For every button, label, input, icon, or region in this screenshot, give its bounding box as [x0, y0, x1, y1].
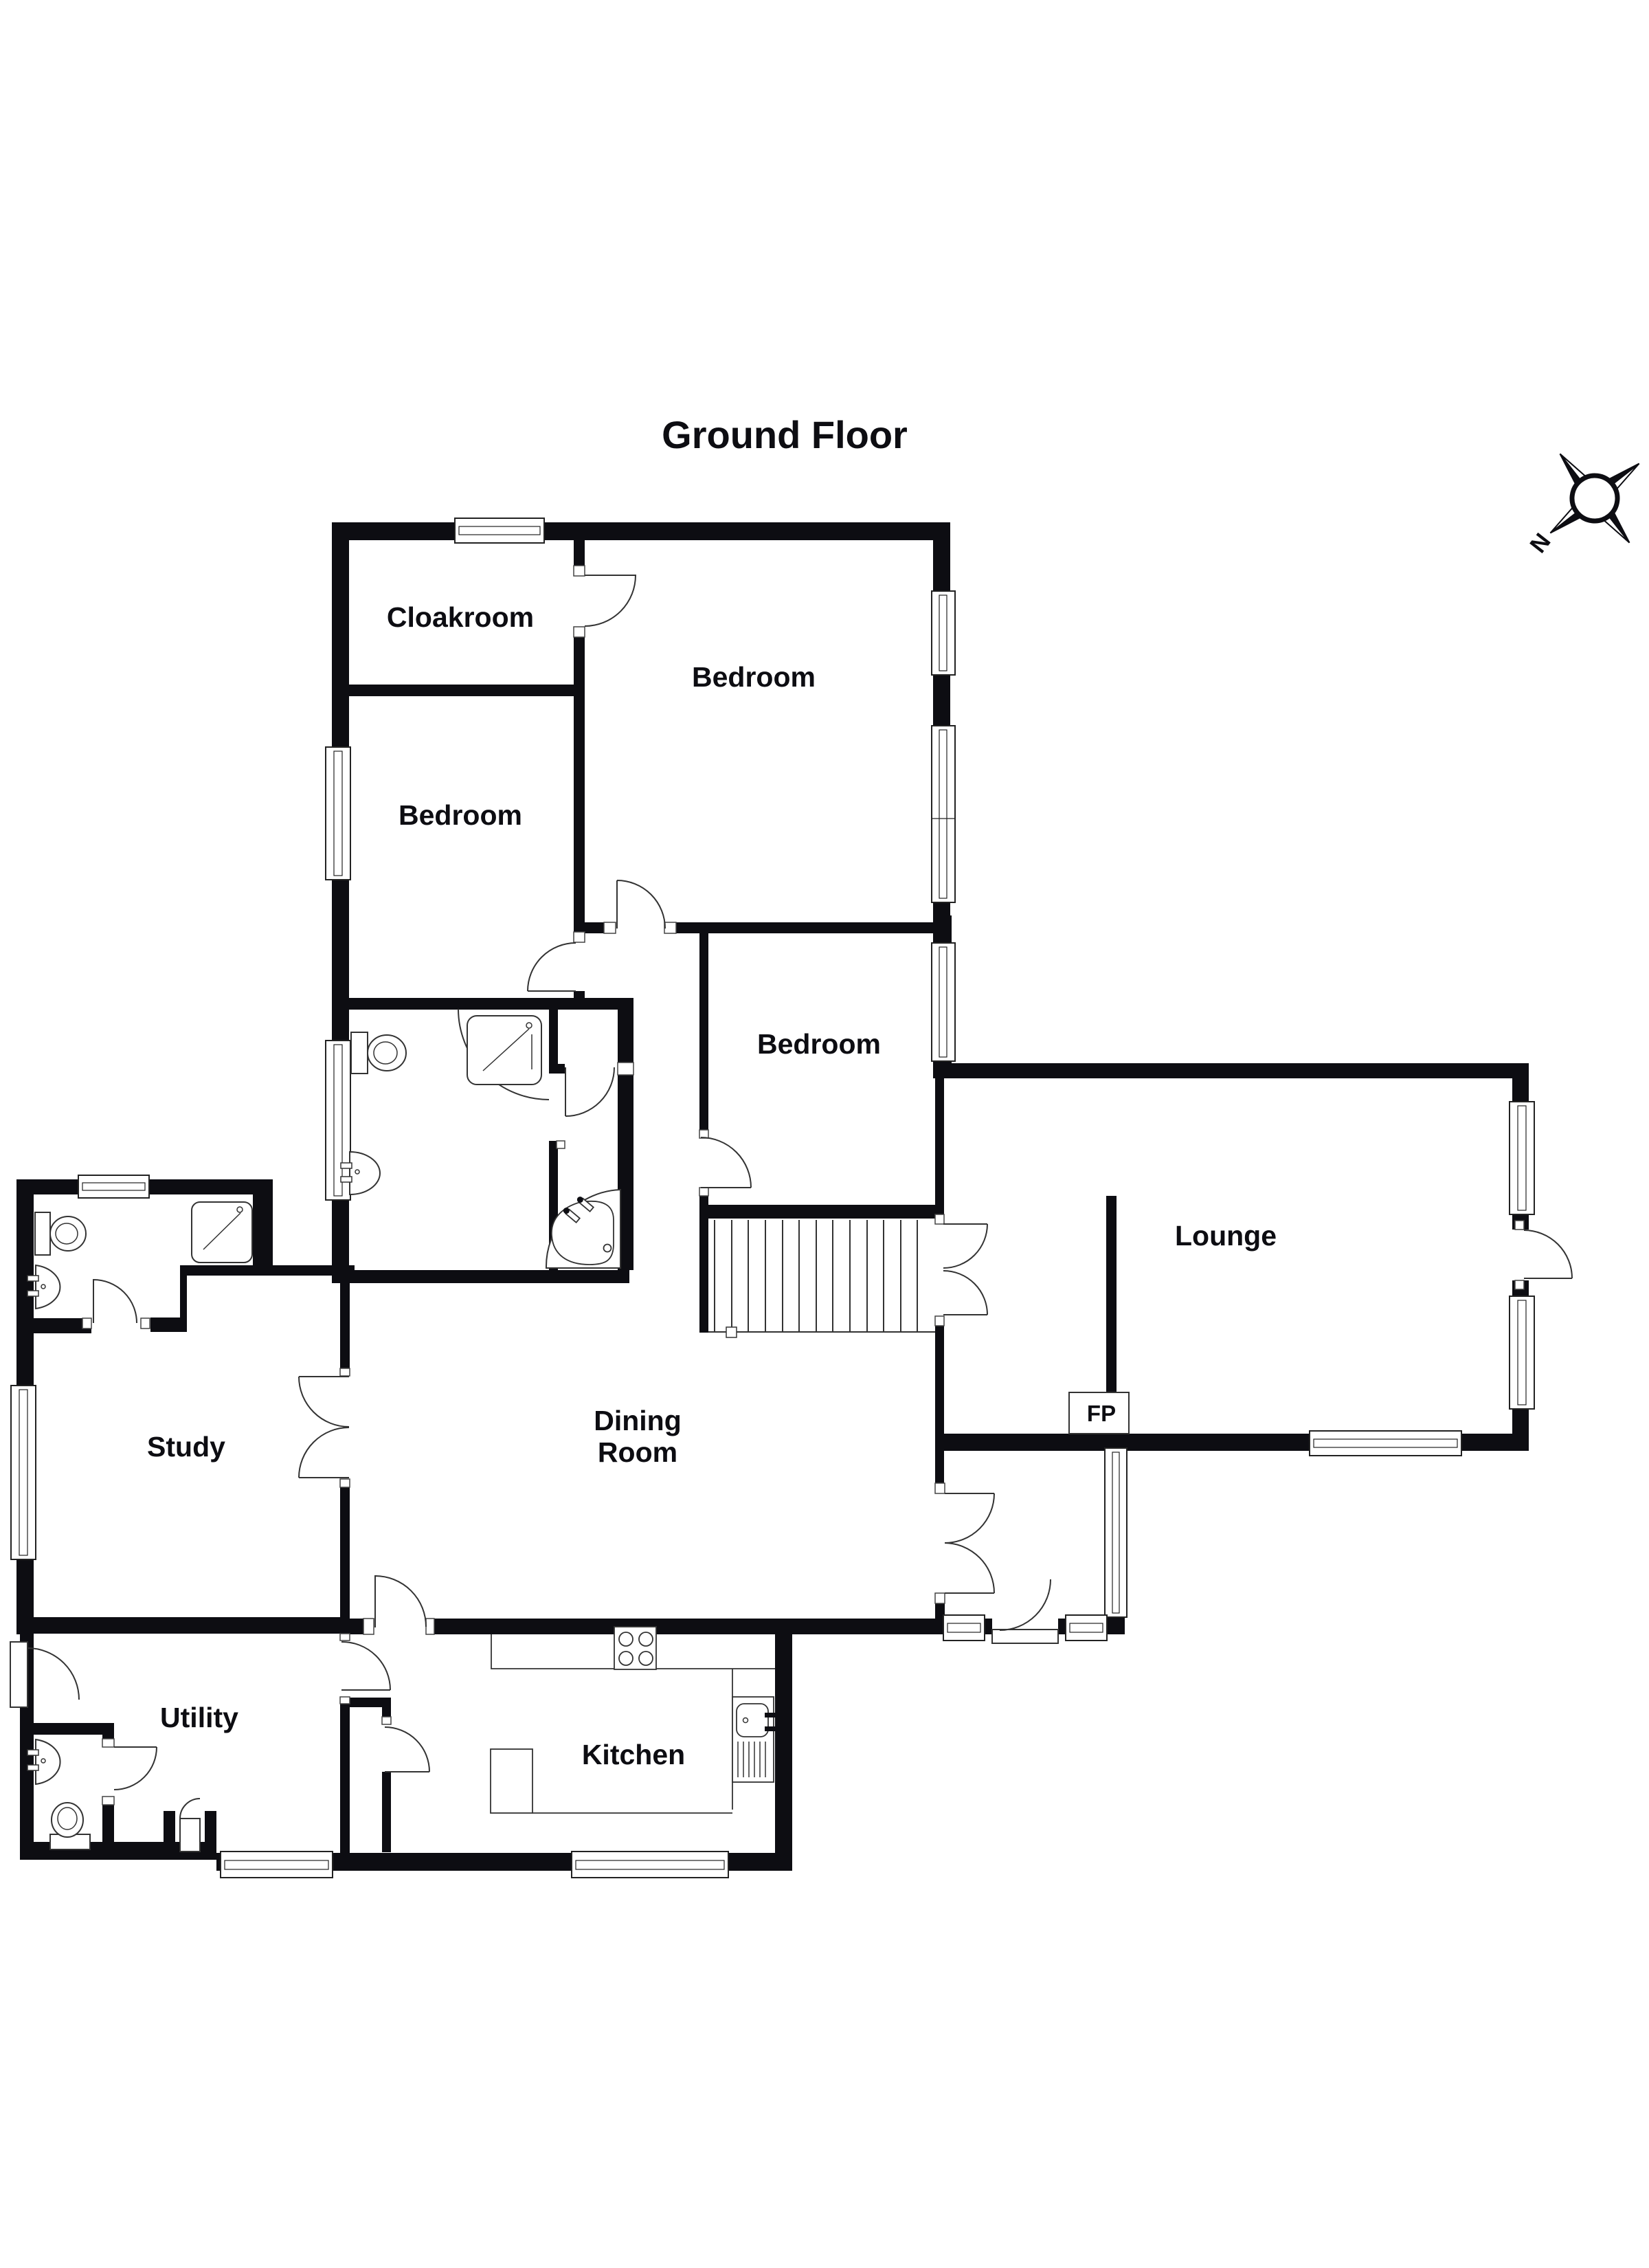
svg-text:Room: Room [598, 1436, 677, 1468]
svg-text:Kitchen: Kitchen [582, 1739, 685, 1770]
svg-text:Cloakroom: Cloakroom [387, 601, 534, 633]
svg-text:Study: Study [147, 1431, 225, 1463]
svg-text:Dining: Dining [594, 1405, 682, 1436]
svg-text:Ground Floor: Ground Floor [662, 413, 908, 456]
svg-text:Utility: Utility [160, 1702, 238, 1733]
svg-text:Bedroom: Bedroom [692, 661, 816, 693]
svg-text:Bedroom: Bedroom [757, 1028, 881, 1060]
svg-text:Lounge: Lounge [1175, 1220, 1277, 1252]
svg-text:FP: FP [1087, 1401, 1116, 1426]
svg-text:Bedroom: Bedroom [399, 799, 522, 831]
